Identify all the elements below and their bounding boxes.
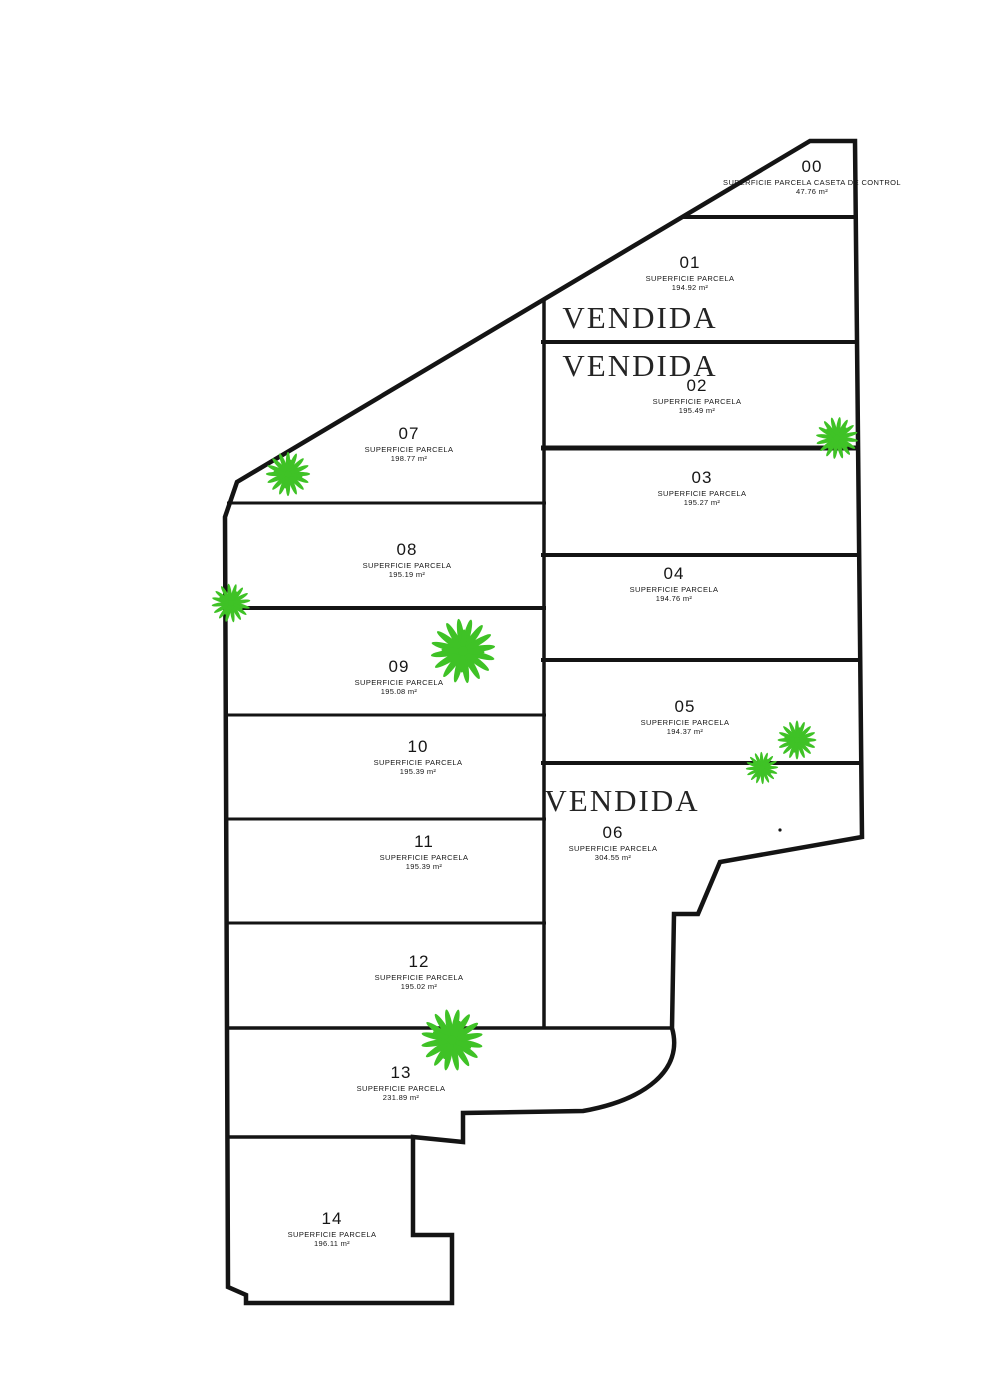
survey-dot: [778, 828, 781, 831]
parcel-04-label: 04 SUPERFICIE PARCELA 194.76 m²: [630, 565, 719, 603]
parcel-09-label: 09 SUPERFICIE PARCELA 195.08 m²: [355, 658, 444, 696]
parcel-number: 12: [375, 953, 464, 971]
parcel-area: 304.55 m²: [569, 853, 658, 862]
parcel-superficie-label: SUPERFICIE PARCELA: [374, 759, 463, 767]
parcel-11-label: 11 SUPERFICIE PARCELA 195.39 m²: [380, 833, 469, 871]
plant-icon: [778, 721, 817, 760]
parcel-number: 13: [357, 1064, 446, 1082]
parcel-number: 09: [355, 658, 444, 676]
parcel-superficie-label: SUPERFICIE PARCELA: [357, 1085, 446, 1093]
parcel-superficie-label: SUPERFICIE PARCELA: [288, 1231, 377, 1239]
parcel-06-label: 06 SUPERFICIE PARCELA 304.55 m²: [569, 824, 658, 862]
parcel-number: 11: [380, 833, 469, 851]
parcel-number: 07: [365, 425, 454, 443]
parcel-superficie-label: SUPERFICIE PARCELA: [630, 586, 719, 594]
parcel-01-label: 01 SUPERFICIE PARCELA 194.92 m²: [646, 254, 735, 292]
parcel-superficie-label: SUPERFICIE PARCELA: [646, 275, 735, 283]
parcel-number: 14: [288, 1210, 377, 1228]
parcel-area: 195.27 m²: [658, 498, 747, 507]
plant-icon: [207, 579, 255, 627]
plant-icon: [266, 452, 310, 496]
parcel-area: 195.08 m²: [355, 687, 444, 696]
parcel-14-label: 14 SUPERFICIE PARCELA 196.11 m²: [288, 1210, 377, 1248]
parcel-area: 195.02 m²: [375, 982, 464, 991]
parcel-05-label: 05 SUPERFICIE PARCELA 194.37 m²: [641, 698, 730, 736]
parcel-area: 198.77 m²: [365, 454, 454, 463]
parcel-03-label: 03 SUPERFICIE PARCELA 195.27 m²: [658, 469, 747, 507]
parcel-superficie-label: SUPERFICIE PARCELA: [365, 446, 454, 454]
parcel-area: 195.39 m²: [380, 862, 469, 871]
parcel-08-label: 08 SUPERFICIE PARCELA 195.19 m²: [363, 541, 452, 579]
divider-13-14: [229, 1137, 463, 1142]
parcel-number: 00: [723, 158, 901, 176]
parcel-area: 231.89 m²: [357, 1093, 446, 1102]
parcel-area: 194.37 m²: [641, 727, 730, 736]
vendida-label-parcel-01: VENDIDA: [562, 300, 717, 336]
vendida-label-parcel-02: VENDIDA: [562, 348, 717, 384]
parcel-area: 195.39 m²: [374, 767, 463, 776]
parcel-number: 10: [374, 738, 463, 756]
parcel-00-label: 00 SUPERFICIE PARCELA CASETA DE CONTROL …: [723, 158, 901, 196]
parcel-superficie-label: SUPERFICIE PARCELA: [653, 398, 742, 406]
parcel-13-label: 13 SUPERFICIE PARCELA 231.89 m²: [357, 1064, 446, 1102]
parcel-number: 05: [641, 698, 730, 716]
parcel-superficie-label: SUPERFICIE PARCELA: [363, 562, 452, 570]
parcel-area: 195.49 m²: [653, 406, 742, 415]
parcel-12-label: 12 SUPERFICIE PARCELA 195.02 m²: [375, 953, 464, 991]
parcel-number: 01: [646, 254, 735, 272]
parcel-area: 195.19 m²: [363, 570, 452, 579]
parcel-superficie-label: SUPERFICIE PARCELA: [375, 974, 464, 982]
parcel-number: 08: [363, 541, 452, 559]
site-plan-drawing: [0, 0, 989, 1400]
plant-icon: [741, 747, 783, 789]
parcel-area: 194.76 m²: [630, 594, 719, 603]
site-plan-page: { "plan": { "type": "parcel-site-plan", …: [0, 0, 989, 1400]
parcel-superficie-label: SUPERFICIE PARCELA: [641, 719, 730, 727]
parcel-10-label: 10 SUPERFICIE PARCELA 195.39 m²: [374, 738, 463, 776]
parcel-number: 06: [569, 824, 658, 842]
parcel-area: 194.92 m²: [646, 283, 735, 292]
parcel-superficie-label: SUPERFICIE PARCELA: [658, 490, 747, 498]
parcel-superficie-label: SUPERFICIE PARCELA: [355, 679, 444, 687]
vendida-label-parcel-06: VENDIDA: [544, 783, 699, 819]
parcel-area: 196.11 m²: [288, 1239, 377, 1248]
parcel-number: 03: [658, 469, 747, 487]
parcel-superficie-label: SUPERFICIE PARCELA CASETA DE CONTROL: [723, 179, 901, 187]
parcel-area: 47.76 m²: [723, 187, 901, 196]
parcel-07-label: 07 SUPERFICIE PARCELA 198.77 m²: [365, 425, 454, 463]
parcel-superficie-label: SUPERFICIE PARCELA: [380, 854, 469, 862]
parcel-superficie-label: SUPERFICIE PARCELA: [569, 845, 658, 853]
parcel-number: 04: [630, 565, 719, 583]
